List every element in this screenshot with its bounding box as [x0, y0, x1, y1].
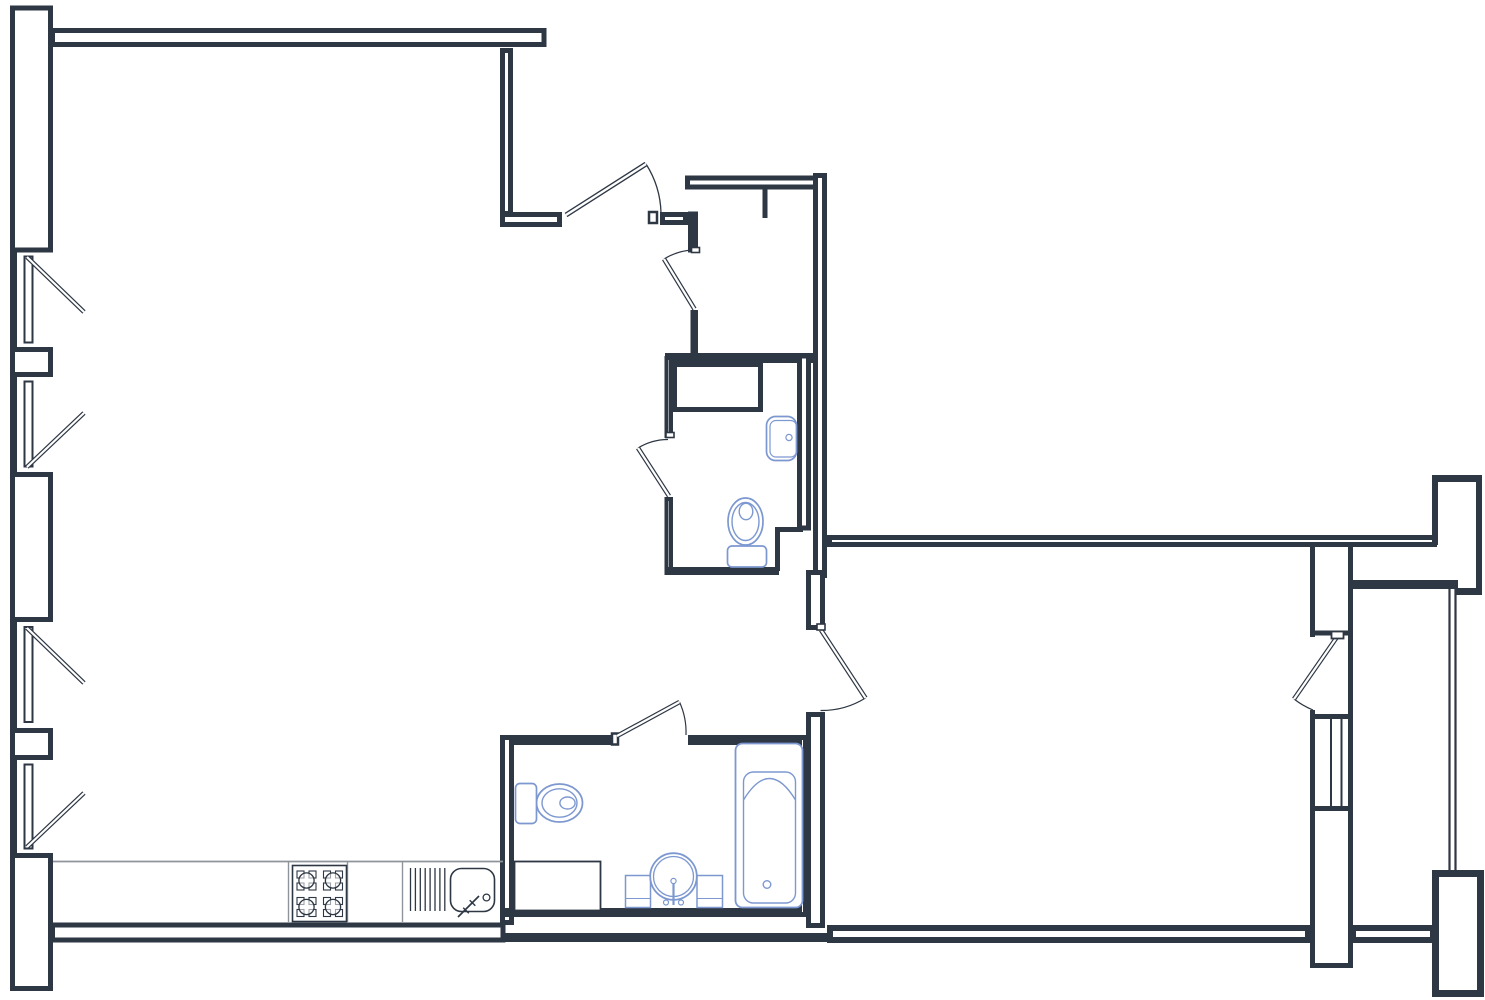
wall-storage-top	[688, 178, 825, 187]
door-right-room	[817, 624, 866, 711]
wall-lbath-top-right	[691, 738, 803, 743]
stove-4-burner	[293, 866, 347, 922]
window-2-frame	[25, 382, 33, 467]
wall-entry-right	[663, 215, 686, 223]
window-1	[25, 257, 85, 343]
window-1-sash-core	[27, 257, 84, 312]
wall-sink-upper	[767, 417, 797, 461]
round-sink-faucet-top	[671, 878, 676, 883]
door-right-room-arc	[821, 698, 866, 711]
bathtub	[736, 744, 803, 908]
wall-bottom-kitchen	[53, 925, 504, 940]
pier-left-3	[13, 731, 51, 758]
window-3-frame	[25, 627, 33, 722]
door-lower-bath-arc	[680, 702, 687, 735]
kitchen-sink-basin	[451, 869, 495, 912]
cabinet-right	[697, 876, 723, 908]
doors	[566, 164, 1344, 736]
wall-lbath-left	[503, 738, 512, 923]
window-2-sash-core	[27, 413, 84, 467]
wall-storage-left-upper	[691, 214, 696, 250]
pier-left-4	[13, 856, 51, 989]
pier-left-1	[13, 350, 51, 375]
pier-bottomright-box	[1436, 874, 1481, 994]
round-sink-handle-right	[679, 900, 684, 905]
round-sink-cabinet	[626, 853, 723, 907]
door-entry	[566, 164, 661, 215]
sanitary-fixtures	[516, 417, 803, 908]
wall-storage-left-lower	[693, 312, 697, 356]
door-storage-leaf-core	[664, 259, 695, 309]
door-balcony-hinge	[1332, 632, 1344, 639]
door-upper-bath-hinge	[666, 433, 674, 438]
door-upper-bath	[638, 433, 674, 497]
window-3	[25, 627, 85, 722]
washing-machine	[515, 862, 601, 911]
floor-plan	[0, 0, 1485, 1000]
window-3-sash-core	[27, 628, 84, 683]
door-upper-bath-leaf-core	[638, 448, 669, 496]
door-right-room-hinge	[817, 624, 825, 630]
door-right-room-leaf-core	[821, 630, 866, 698]
wall-bottom-right-west	[830, 928, 1308, 940]
window-4-sash-core	[27, 793, 84, 847]
toilet-lower	[516, 784, 583, 824]
wall-entry-left	[503, 215, 560, 225]
door-storage-hinge	[692, 248, 700, 253]
round-sink-handle-left	[664, 900, 669, 905]
pier-left-2	[13, 475, 51, 620]
entry-door-jamb	[649, 212, 657, 223]
wall-top-main	[53, 31, 545, 45]
door-storage	[664, 248, 700, 310]
wall-rroom-left-upper	[809, 573, 823, 628]
wall-ubath-left-lower	[667, 499, 672, 573]
door-entry-leaf-core	[566, 164, 646, 215]
wall-bigroom-right	[503, 51, 511, 214]
door-upper-bath-arc	[638, 440, 668, 449]
wall-storage-right-strip	[816, 176, 825, 576]
wall-rroom-left-lower	[809, 715, 823, 926]
cabinet-left	[626, 876, 651, 908]
floor-plan-canvas	[0, 0, 1485, 1000]
window-2	[25, 382, 85, 468]
pier-left-0	[13, 8, 51, 250]
toilet-lower-tank	[516, 784, 537, 824]
wall-right-room-top	[830, 538, 1435, 545]
bathtub-outer	[736, 744, 803, 908]
toilet-upper	[728, 498, 767, 567]
door-lower-bath	[617, 702, 686, 736]
window-4	[25, 765, 85, 849]
wall-ubath-left-upper	[667, 358, 672, 436]
kitchen-sink	[451, 869, 495, 918]
door-lower-bath-leaf-core	[617, 702, 680, 736]
window-4-frame	[25, 765, 33, 849]
vent-duct	[675, 365, 761, 410]
window-loggia-glazing	[1450, 589, 1456, 870]
door-entry-arc	[646, 164, 661, 213]
dish-drainer	[411, 868, 445, 911]
toilet-upper-bowl	[728, 498, 763, 545]
toilet-upper-tank	[728, 546, 767, 567]
wall-lbath-top-left	[508, 738, 616, 743]
wall-bottom-right-east	[1353, 928, 1433, 940]
wall-ubath-right	[800, 356, 809, 528]
window-1-frame	[25, 257, 33, 343]
